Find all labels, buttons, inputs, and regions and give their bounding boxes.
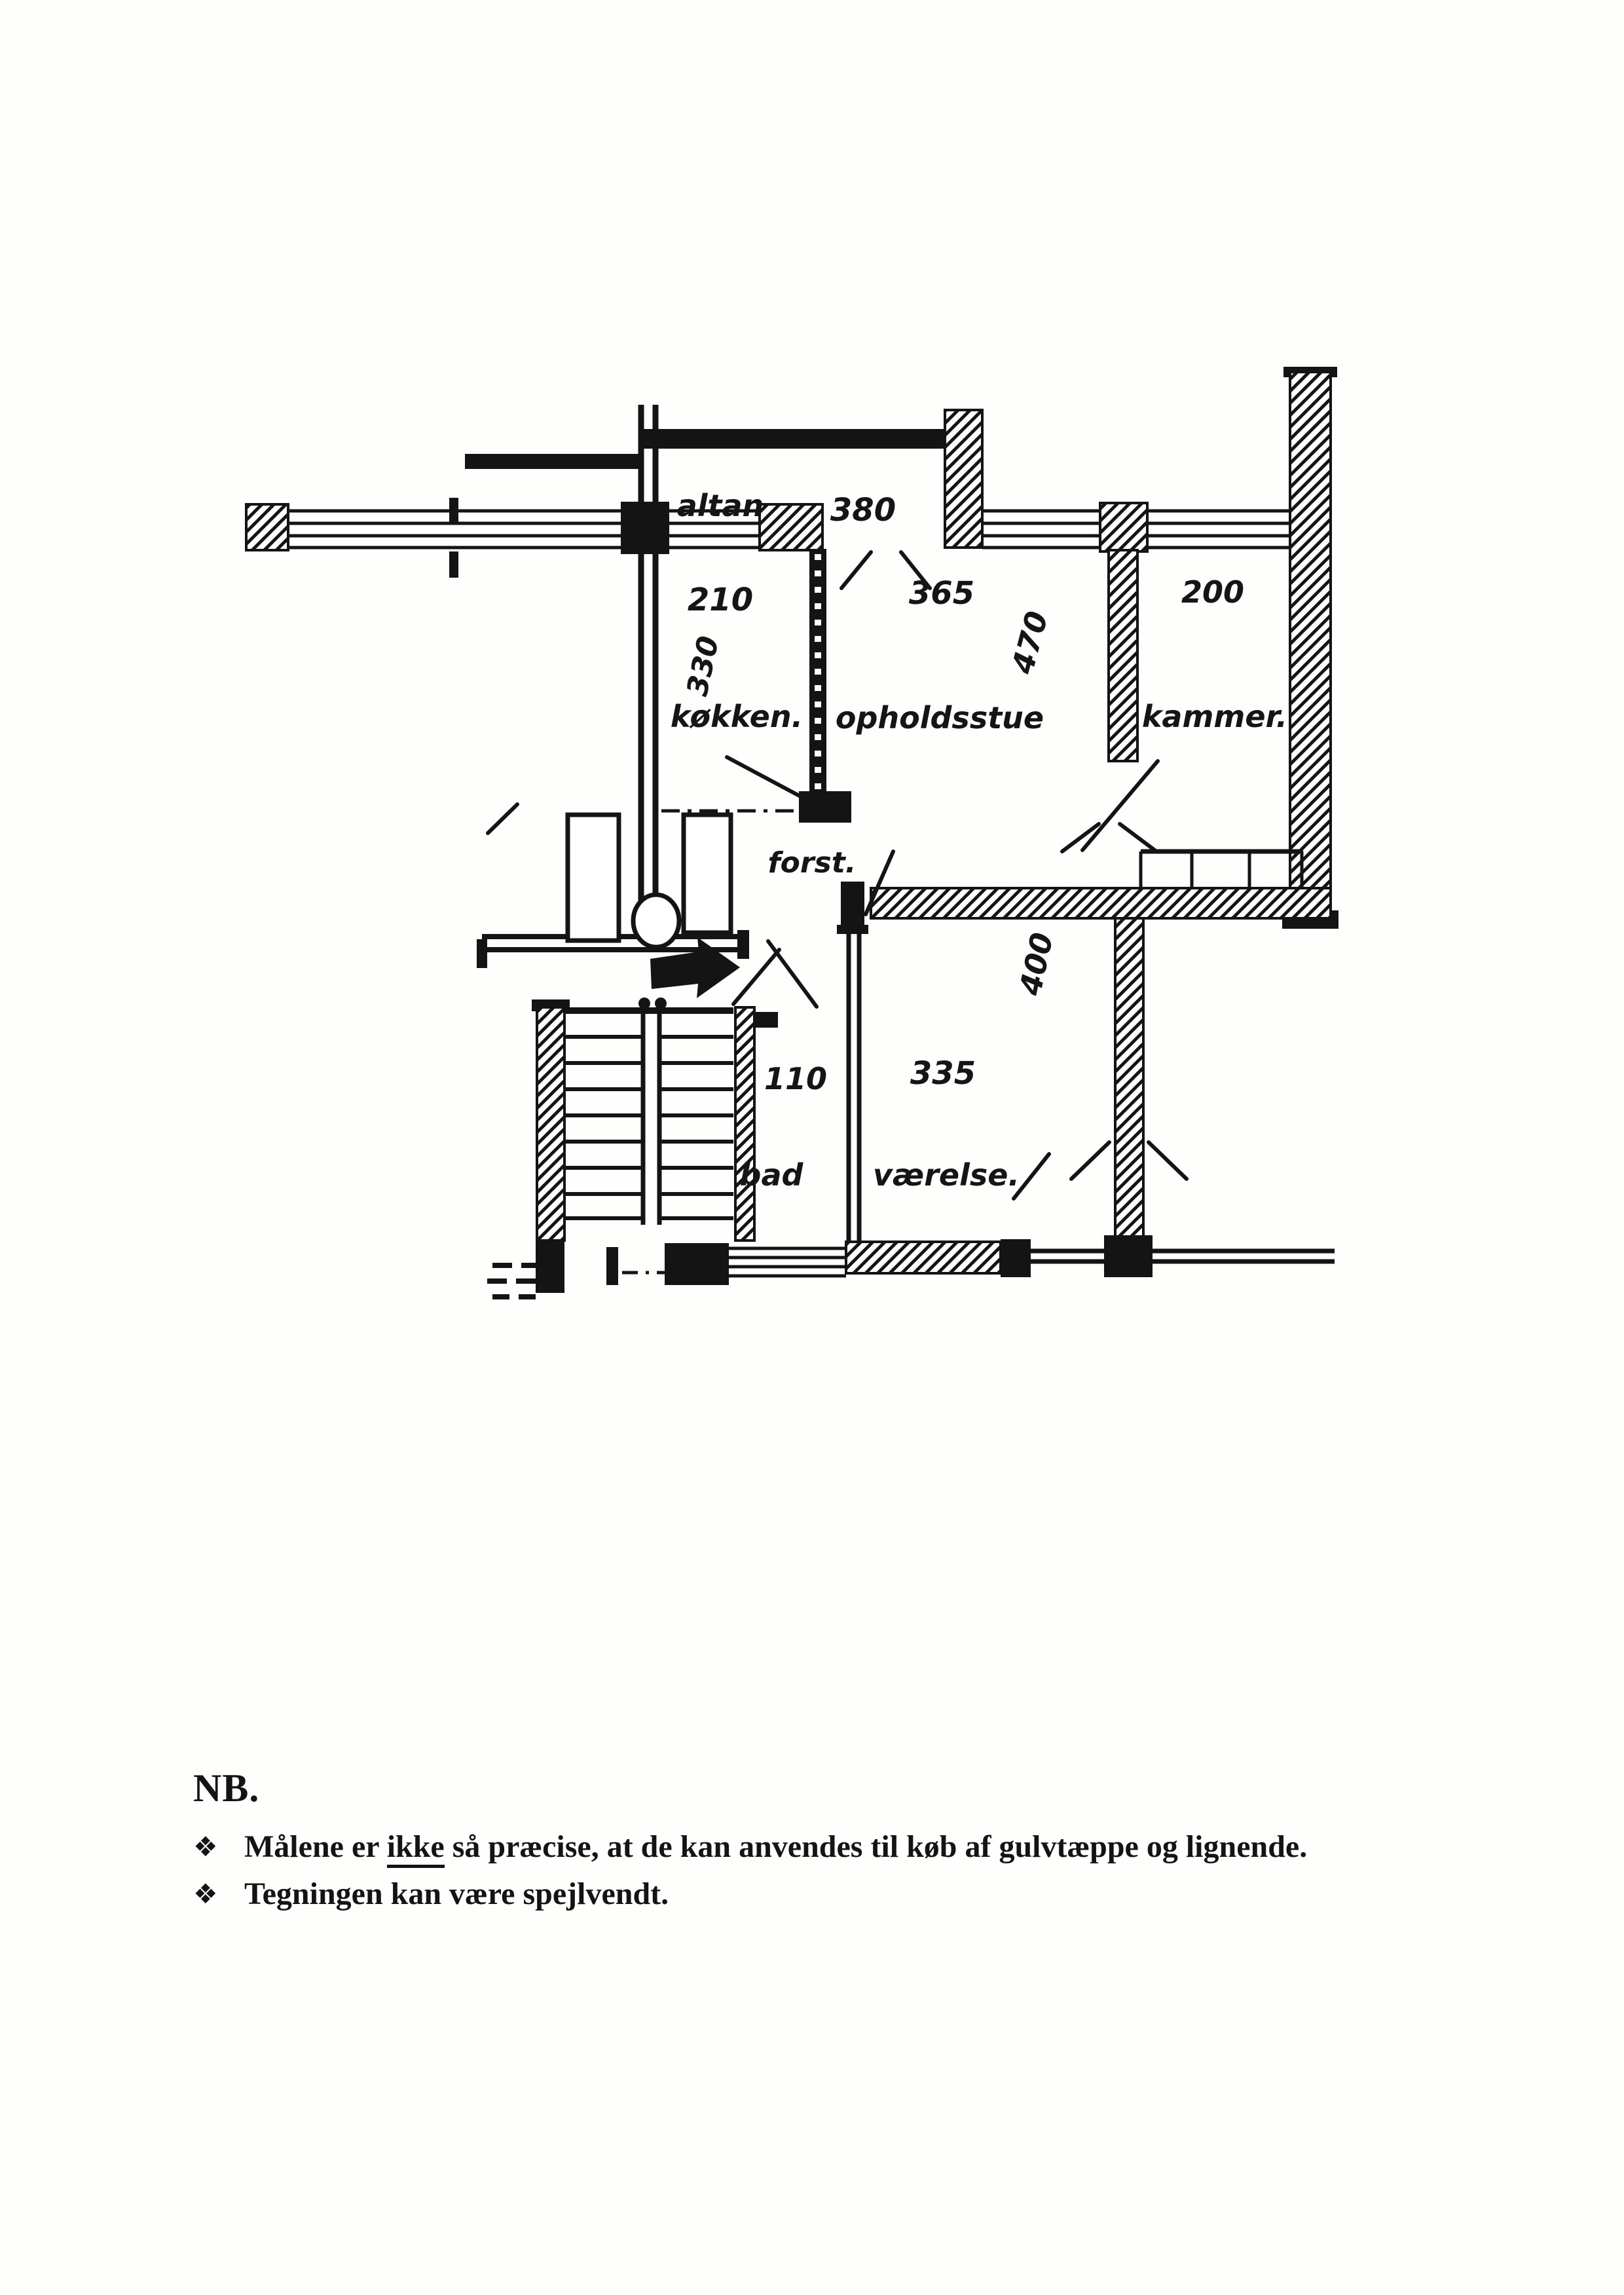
wall-kammer-left xyxy=(1109,550,1137,761)
wall-balcony-top xyxy=(638,429,982,449)
wall-stair-right xyxy=(735,1007,754,1241)
list-item: ❖ Målene er ikke så præcise, at de kan a… xyxy=(193,1828,1437,1866)
window-mark-bottom-b xyxy=(1071,1142,1109,1179)
wall-corridor-post xyxy=(841,882,864,925)
cupboard-right xyxy=(684,815,731,933)
cupboard-left xyxy=(568,815,619,941)
floor-plan-drawing: altan 380 210 330 køkken. 365 470 ophold… xyxy=(216,367,1375,1349)
nb-item-post: Tegningen kan være spejlvendt. xyxy=(244,1876,669,1911)
wall-entry-left-tick xyxy=(477,939,487,968)
nb-item-emphasis: ikke xyxy=(387,1829,445,1868)
wall-stair-right-tick xyxy=(754,1012,778,1028)
nb-item-text: Målene er ikke så præcise, at de kan anv… xyxy=(244,1828,1307,1866)
window-living xyxy=(982,511,1100,548)
window-bad-bottom xyxy=(729,1248,846,1276)
wall-neighbor-divider xyxy=(465,454,638,469)
wall-balcony-right-column xyxy=(945,410,982,548)
dim-altan-width: 380 xyxy=(830,492,896,529)
wall-kitchen-divider-foot xyxy=(799,791,851,823)
room-label-altan: altan xyxy=(677,488,764,523)
room-label-kammer: kammer. xyxy=(1142,699,1287,734)
dim-kammer-width: 200 xyxy=(1181,574,1244,610)
wall-kitchen-divider xyxy=(809,549,826,802)
dim-vaerelse-depth: 400 xyxy=(1012,929,1060,999)
wall-facade-pier-kammer xyxy=(1100,503,1147,551)
door-kitchen xyxy=(727,757,805,799)
dim-kokken-width: 210 xyxy=(688,582,753,618)
door-kammer-tick-b xyxy=(1120,824,1156,851)
list-item: ❖ Tegningen kan være spejlvendt. xyxy=(193,1875,1437,1913)
room-label-forstue: forst. xyxy=(767,846,856,880)
nb-heading: NB. xyxy=(193,1766,1437,1811)
wall-bottom-hatched xyxy=(846,1242,1001,1273)
dim-opholdsstue-width: 365 xyxy=(909,575,974,612)
window-tick-b xyxy=(449,551,458,578)
dim-kokken-depth: 330 xyxy=(680,633,726,699)
door-kammer xyxy=(1082,761,1158,850)
nb-notes: NB. ❖ Målene er ikke så præcise, at de k… xyxy=(193,1766,1437,1922)
door-balcony-left xyxy=(841,552,871,588)
stair-treads-right xyxy=(659,1037,733,1218)
window-mark-bottom-c xyxy=(1149,1142,1187,1179)
wall-stair-left xyxy=(537,1007,564,1241)
door-neighbor-landing xyxy=(488,804,517,833)
diamond-bullet-icon: ❖ xyxy=(193,1828,244,1866)
wall-facade-pier-kitchen xyxy=(760,504,822,550)
wall-corridor xyxy=(871,888,1331,918)
nb-list: ❖ Målene er ikke så præcise, at de kan a… xyxy=(193,1828,1437,1913)
wall-neighbor-window-slab xyxy=(246,504,288,550)
window-kammer xyxy=(1147,511,1290,548)
wall-facade-junction xyxy=(621,502,669,554)
nb-item-post: så præcise, at de kan anvendes til køb a… xyxy=(445,1829,1308,1864)
dim-vaerelse-width: 335 xyxy=(910,1055,976,1092)
hall-fixtures xyxy=(568,815,731,947)
door-bad xyxy=(768,941,817,1007)
scanned-page: altan 380 210 330 køkken. 365 470 ophold… xyxy=(0,0,1624,2295)
plan-labels: altan 380 210 330 køkken. 365 470 ophold… xyxy=(671,488,1287,1193)
floor-plan: altan 380 210 330 køkken. 365 470 ophold… xyxy=(216,367,1375,1349)
staircase xyxy=(563,1011,733,1218)
dashed-lines xyxy=(487,811,805,1297)
diamond-bullet-icon: ❖ xyxy=(193,1875,244,1913)
room-label-vaerelse: værelse. xyxy=(873,1157,1020,1193)
nb-item-pre: Målene er xyxy=(244,1829,387,1864)
dim-bad-width: 110 xyxy=(764,1061,827,1096)
wall-bottom-pier-right xyxy=(1001,1239,1031,1277)
nb-item-text: Tegningen kan være spejlvendt. xyxy=(244,1875,669,1913)
dim-opholdsstue-depth: 470 xyxy=(1005,607,1055,678)
wall-vaerelse-right xyxy=(1115,918,1143,1237)
water-heater xyxy=(633,895,679,947)
room-label-bad: bad xyxy=(740,1157,804,1193)
stair-treads-left xyxy=(564,1037,643,1218)
room-label-kokken: køkken. xyxy=(671,699,803,734)
room-label-opholdsstue: opholdsstue xyxy=(836,700,1044,736)
hatched-walls xyxy=(246,372,1331,1273)
wall-bad-divider-tick xyxy=(837,925,868,934)
wall-bottom-pier-left xyxy=(665,1243,729,1285)
wall-landing-tick xyxy=(606,1247,618,1285)
wall-vaerelse-foot xyxy=(1104,1235,1153,1277)
wall-outer-right xyxy=(1290,372,1331,914)
